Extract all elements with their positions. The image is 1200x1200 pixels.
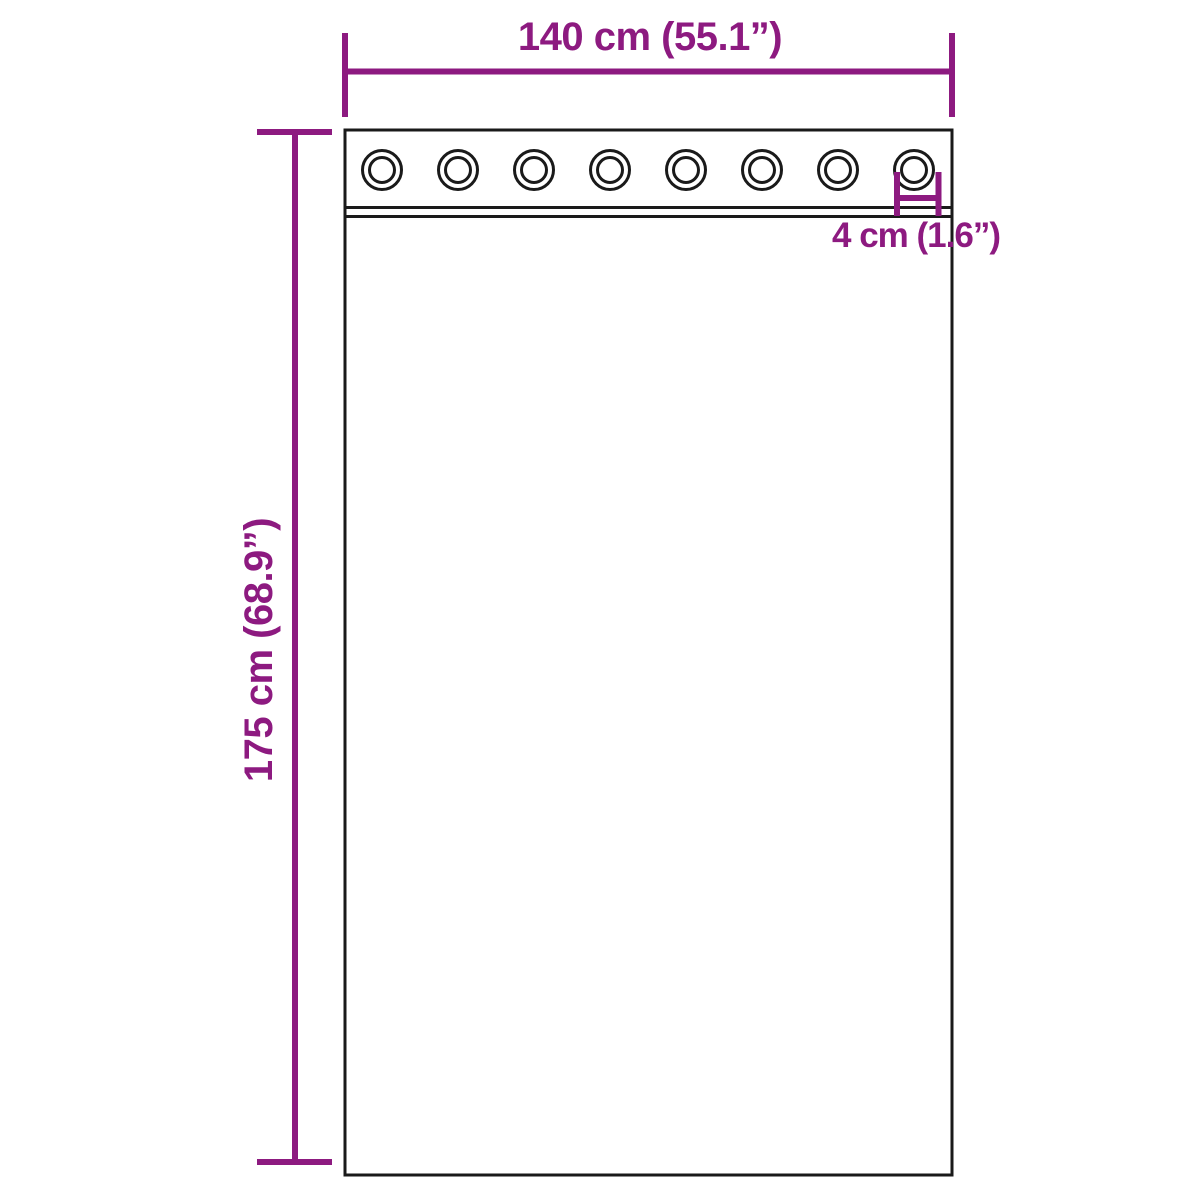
height-dimension: 175 cm (68.9”) bbox=[237, 132, 332, 1162]
grommet-diameter-label: 4 cm (1.6”) bbox=[832, 216, 1000, 255]
curtain-dimension-diagram: 140 cm (55.1”) 175 cm (68.9”) 4 cm (1.6”… bbox=[0, 0, 1200, 1200]
curtain-panel bbox=[345, 130, 952, 1175]
height-dimension-label: 175 cm (68.9”) bbox=[237, 518, 281, 782]
diagram-canvas: 140 cm (55.1”) 175 cm (68.9”) 4 cm (1.6”… bbox=[0, 0, 1200, 1200]
width-dimension-label: 140 cm (55.1”) bbox=[518, 15, 782, 59]
width-dimension: 140 cm (55.1”) bbox=[345, 15, 952, 117]
